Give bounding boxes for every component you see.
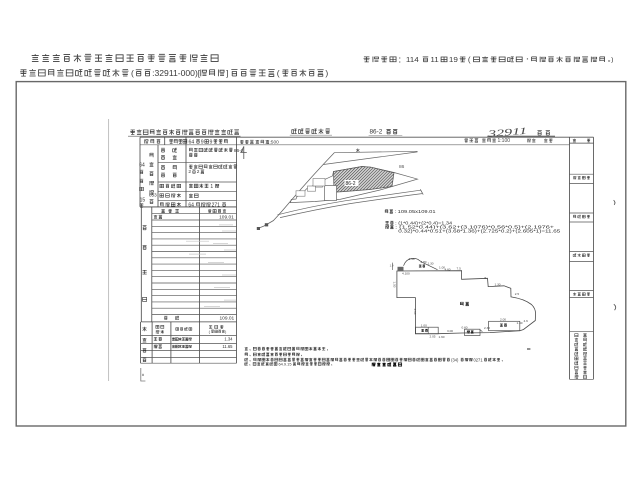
svg-text:86-2: 86-2 xyxy=(370,129,383,136)
svg-text:: 109.05x109.01: : 109.05x109.01 xyxy=(395,209,437,214)
svg-text:2.00: 2.00 xyxy=(500,318,506,322)
svg-text:1: 1 xyxy=(210,184,213,190)
svg-text:]: ] xyxy=(226,68,228,78)
svg-text:2.30: 2.30 xyxy=(484,326,490,330)
svg-text:1.60: 1.60 xyxy=(439,335,445,339)
svg-text:。): 。) xyxy=(608,57,614,63)
svg-text:3.00: 3.00 xyxy=(447,329,453,333)
svg-text:86-2: 86-2 xyxy=(346,181,356,187)
svg-text:853: 853 xyxy=(149,193,157,198)
svg-text:0.32)*0.44*0.51+(3.68*1.36)+(2: 0.32)*0.44*0.51+(3.68*1.36)+(2.725*0.2)+… xyxy=(398,228,561,233)
svg-text:5: 5 xyxy=(485,276,487,280)
svg-text:86: 86 xyxy=(399,164,405,170)
svg-text::32911-000)[: :32911-000)[ xyxy=(152,68,201,78)
svg-text:1.30: 1.30 xyxy=(428,261,434,265)
svg-text:(: ( xyxy=(131,68,134,78)
svg-text:2: 2 xyxy=(197,169,200,175)
svg-text:：114: ：114 xyxy=(398,56,419,64)
svg-text:1.40: 1.40 xyxy=(517,321,523,325)
svg-text:64: 64 xyxy=(139,163,145,169)
svg-text:4.6: 4.6 xyxy=(524,319,529,323)
svg-text:9: 9 xyxy=(210,139,213,145)
svg-text:1:100: 1:100 xyxy=(498,138,511,144)
svg-text:2.80: 2.80 xyxy=(421,260,427,264)
svg-text:9: 9 xyxy=(201,139,204,145)
svg-text:1.00: 1.00 xyxy=(421,324,427,328)
svg-text:7.5: 7.5 xyxy=(457,267,462,271)
svg-text:11.65: 11.65 xyxy=(222,344,233,349)
svg-text:1.38: 1.38 xyxy=(409,257,415,261)
svg-text:1.34: 1.34 xyxy=(224,337,233,342)
svg-text:64: 64 xyxy=(189,139,195,145)
svg-text:): ) xyxy=(325,68,328,78)
svg-text:2.5: 2.5 xyxy=(515,292,520,296)
svg-text:2.05: 2.05 xyxy=(430,335,436,339)
svg-text:19: 19 xyxy=(449,56,458,64)
svg-text:(: ( xyxy=(277,68,280,78)
svg-text:4.100: 4.100 xyxy=(402,271,410,275)
svg-text:109.01: 109.01 xyxy=(220,315,235,321)
svg-text:64: 64 xyxy=(188,203,194,209)
svg-text:109.01: 109.01 xyxy=(219,215,234,221)
svg-text:4.60: 4.60 xyxy=(445,268,451,272)
svg-text:15: 15 xyxy=(140,198,146,204)
svg-text:64.9.15: 64.9.15 xyxy=(279,361,292,366)
svg-text:0.60: 0.60 xyxy=(462,326,468,330)
svg-text:(34): (34) xyxy=(451,357,459,362)
svg-text:・: ・ xyxy=(524,57,530,63)
svg-text:0271: 0271 xyxy=(474,357,484,362)
svg-text:1.30: 1.30 xyxy=(495,282,501,286)
svg-text:4.10: 4.10 xyxy=(413,309,417,315)
svg-text:1.0: 1.0 xyxy=(390,263,394,267)
svg-text:11: 11 xyxy=(430,56,438,64)
svg-text:271: 271 xyxy=(212,203,221,209)
svg-text:2: 2 xyxy=(188,169,191,175)
svg-text:1.50: 1.50 xyxy=(393,282,397,288)
